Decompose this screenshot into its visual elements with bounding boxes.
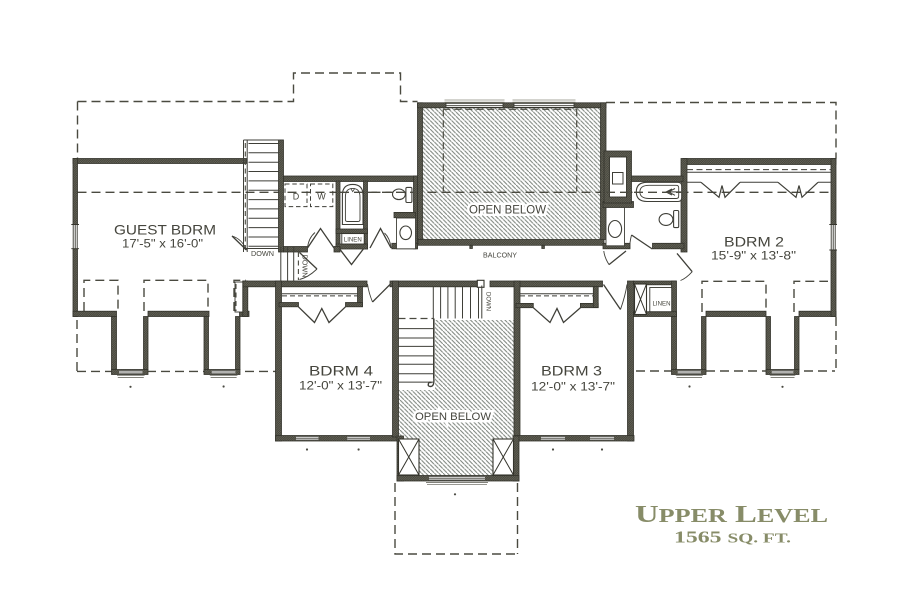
svg-text:LINEN: LINEN [344, 237, 362, 244]
svg-text:UPPER LEVEL: UPPER LEVEL [635, 501, 828, 528]
svg-text:DOWN: DOWN [301, 255, 310, 278]
svg-text:LINEN: LINEN [653, 301, 671, 308]
svg-text:DOWN: DOWN [251, 249, 274, 258]
svg-text:17'-5" x 16'-0": 17'-5" x 16'-0" [122, 237, 203, 251]
svg-text:12'-0" x 13'-7": 12'-0" x 13'-7" [531, 380, 615, 394]
svg-text:BALCONY: BALCONY [483, 251, 517, 260]
svg-text:W: W [317, 192, 326, 202]
svg-text:15'-9" x 13'-8": 15'-9" x 13'-8" [711, 249, 796, 263]
svg-text:OPEN BELOW: OPEN BELOW [415, 411, 492, 423]
svg-text:1565 SQ. FT.: 1565 SQ. FT. [674, 528, 791, 547]
svg-text:BDRM 4: BDRM 4 [309, 363, 373, 379]
svg-text:D: D [293, 192, 300, 202]
svg-text:OPEN BELOW: OPEN BELOW [469, 203, 547, 217]
svg-text:GUEST BDRM: GUEST BDRM [114, 222, 216, 238]
svg-text:DOWN: DOWN [485, 292, 492, 311]
svg-text:BDRM 3: BDRM 3 [541, 363, 602, 379]
svg-text:12'-0" x 13'-7": 12'-0" x 13'-7" [299, 379, 382, 393]
svg-text:BDRM 2: BDRM 2 [724, 234, 784, 250]
